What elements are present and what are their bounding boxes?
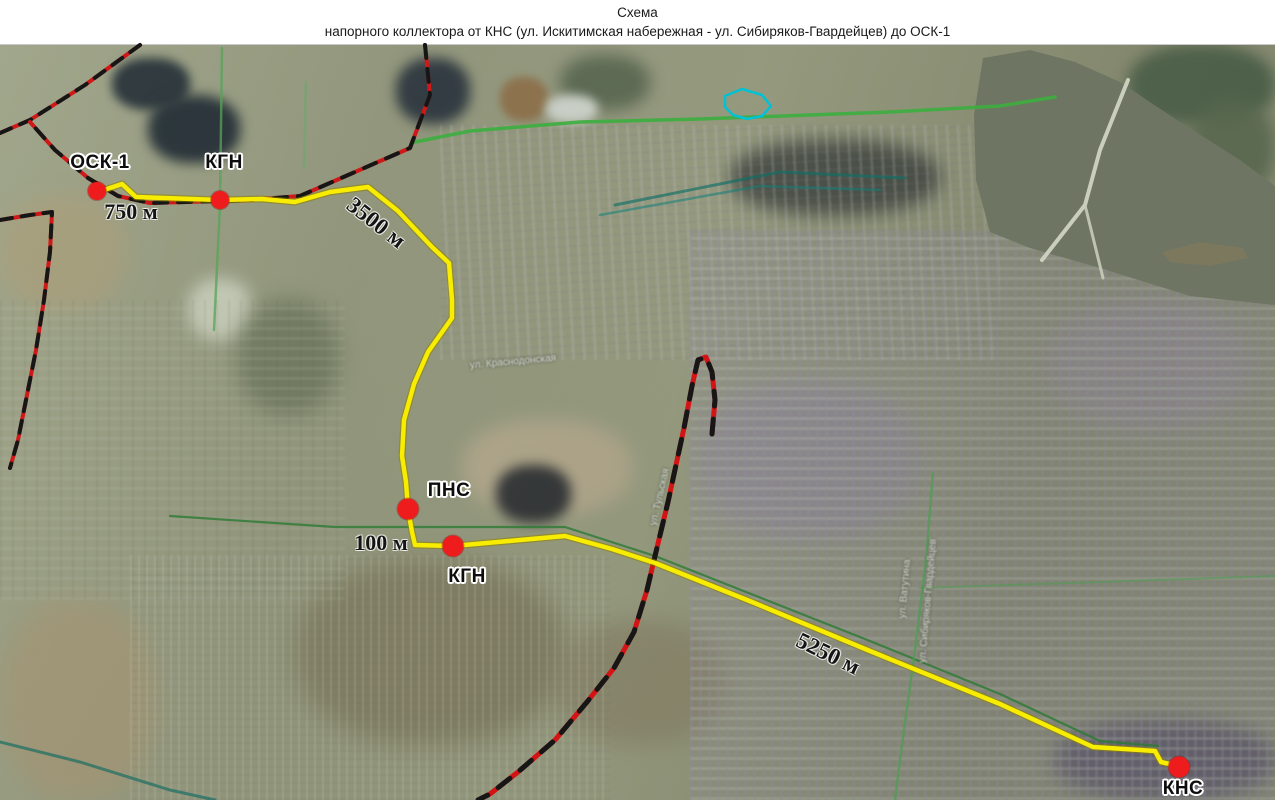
title-line-2: напорного коллектора от КНС (ул. Искитим… bbox=[0, 22, 1275, 41]
scheme-page: Схема напорного коллектора от КНС (ул. И… bbox=[0, 0, 1275, 800]
map-wash-overlay bbox=[0, 45, 1275, 800]
satellite-map bbox=[0, 45, 1275, 800]
title-line-1: Схема bbox=[0, 3, 1275, 22]
scheme-title: Схема напорного коллектора от КНС (ул. И… bbox=[0, 3, 1275, 41]
